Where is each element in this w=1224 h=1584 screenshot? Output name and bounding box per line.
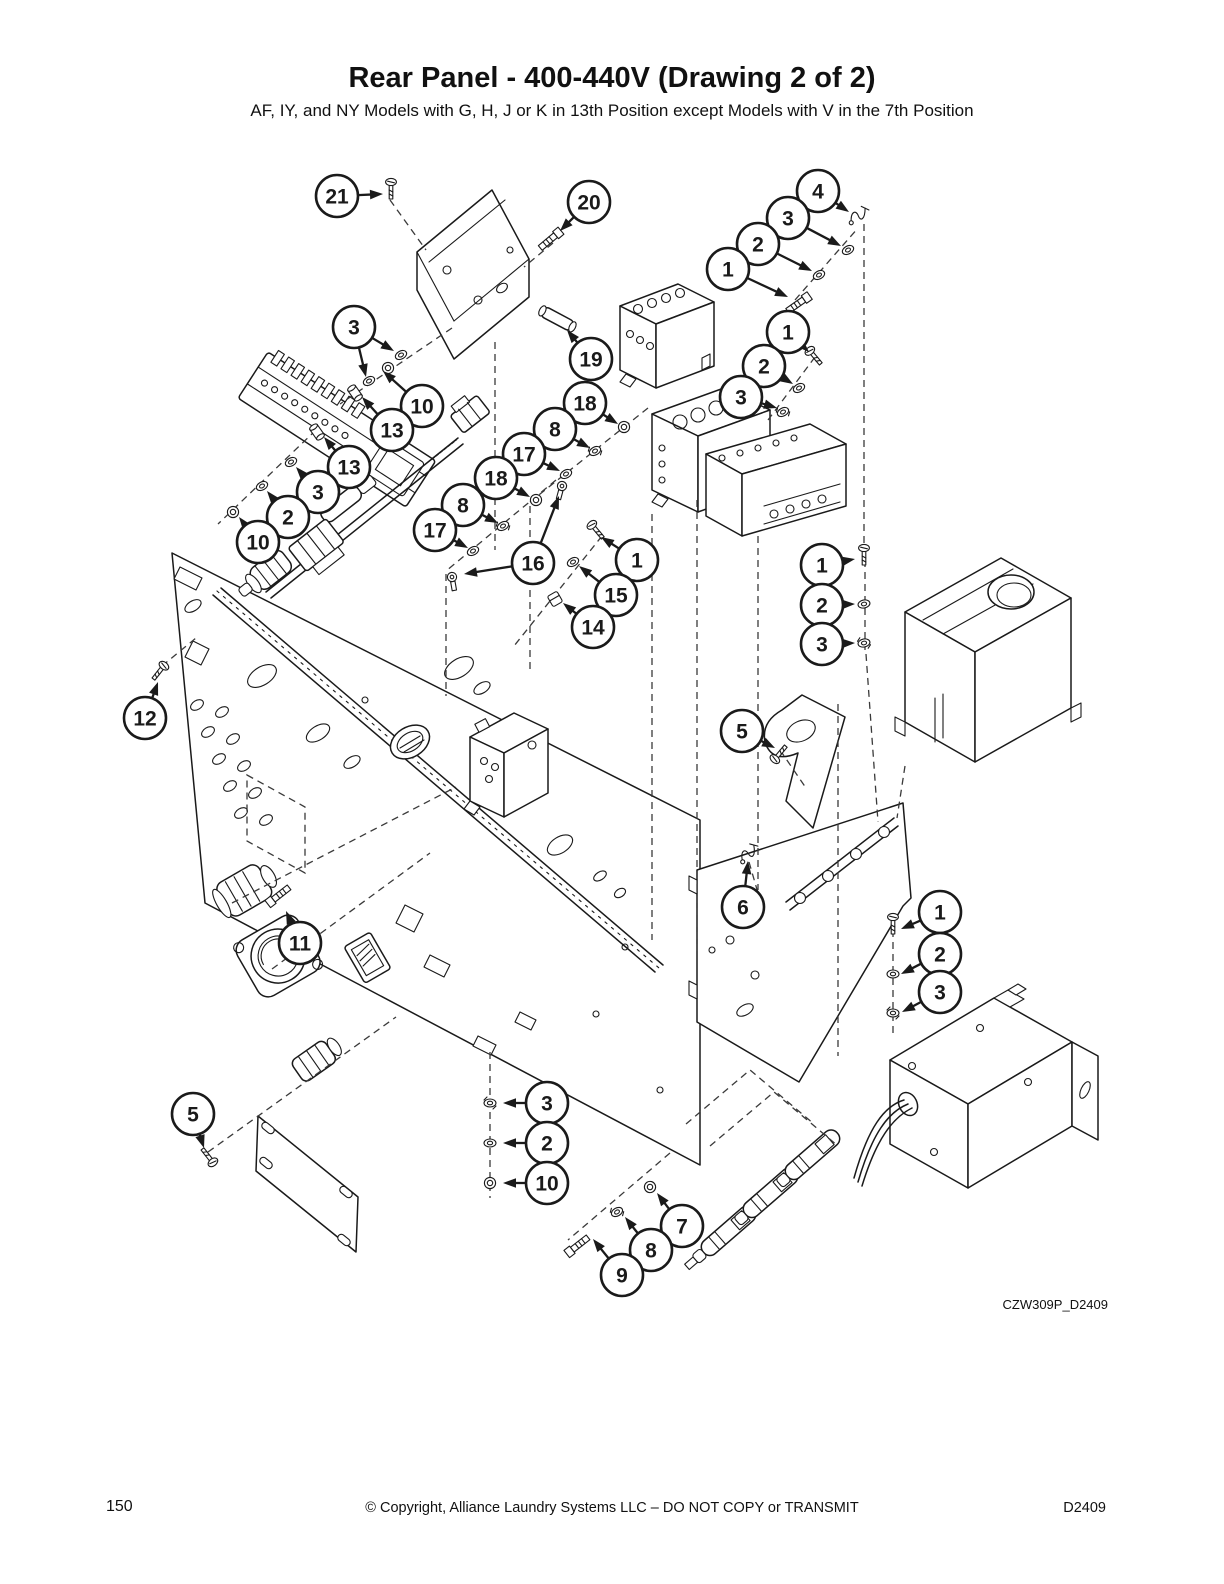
fastener-term (447, 572, 459, 592)
fastener-clamp (845, 204, 871, 225)
callout-arrowhead (370, 190, 383, 200)
callout-number: 3 (541, 1093, 553, 1116)
leader-line (208, 1017, 396, 1152)
fastener-washer (284, 456, 298, 469)
callout-3: 3 (503, 1082, 568, 1124)
callout-number: 7 (676, 1216, 688, 1239)
fastener-washer (362, 375, 376, 388)
callout-arrow (807, 228, 833, 242)
fastener-washer (792, 382, 806, 395)
callout-number: 8 (549, 419, 561, 442)
callout-arrowhead (484, 513, 498, 523)
callout-12: 12 (124, 682, 166, 739)
callout-number: 5 (736, 721, 748, 744)
callout-5: 5 (172, 1093, 214, 1148)
callout-arrowhead (464, 567, 478, 576)
callout-number: 11 (289, 933, 312, 956)
control-box (895, 558, 1081, 762)
callout-arrowhead (550, 496, 559, 510)
callout-number: 13 (337, 457, 360, 480)
callout-arrowhead (380, 340, 394, 351)
fastener-screw (149, 660, 170, 683)
callout-arrowhead (358, 363, 367, 377)
callout-arrowhead (516, 486, 530, 497)
callout-3: 3 (801, 623, 855, 665)
fastener-washer (394, 349, 408, 362)
fastener-washer (812, 269, 826, 282)
callout-arrowhead (774, 287, 788, 297)
fastener-washer (466, 545, 480, 558)
callout-arrowhead (901, 919, 915, 929)
callout-10: 10 (503, 1162, 568, 1204)
callout-number: 2 (752, 234, 764, 257)
callout-arrowhead (195, 1134, 204, 1148)
callout-number: 16 (521, 553, 544, 576)
callout-number: 3 (816, 634, 828, 657)
callout-arrowhead (149, 682, 158, 696)
callout-number: 2 (758, 356, 770, 379)
callout-number: 2 (934, 944, 946, 967)
fastener-nut (227, 506, 238, 517)
fastener-screw (386, 178, 397, 199)
callout-number: 1 (934, 902, 946, 925)
drawing-code: CZW309P_D2409 (978, 1297, 1108, 1312)
callout-number: 3 (934, 982, 946, 1005)
cover-plate (256, 1116, 358, 1252)
callout-number: 17 (512, 444, 535, 467)
callout-number: 5 (187, 1104, 199, 1127)
copyright-text: © Copyright, Alliance Laundry Systems LL… (0, 1500, 1224, 1516)
leader-line (390, 200, 426, 250)
callout-number: 1 (816, 555, 828, 578)
callout-number: 21 (325, 186, 349, 209)
callout-number: 2 (541, 1133, 553, 1156)
fastener-nut (484, 1177, 495, 1188)
callout-arrow (747, 278, 779, 293)
callout-number: 10 (246, 532, 269, 555)
callout-arrowhead (503, 1178, 516, 1188)
callout-number: 4 (812, 181, 824, 204)
manual-page: Rear Panel - 400-440V (Drawing 2 of 2) A… (0, 0, 1224, 1584)
callout-2: 2 (503, 1122, 568, 1164)
callout-arrowhead (827, 236, 841, 246)
fastener-lock (887, 1007, 899, 1019)
callout-number: 13 (380, 420, 403, 443)
fastener-lock (495, 518, 511, 534)
fastener-washer (255, 480, 269, 493)
fastener-term (554, 480, 568, 500)
callout-2: 2 (801, 584, 855, 626)
callout-14: 14 (563, 603, 614, 648)
callout-number: 3 (348, 317, 360, 340)
callout-1: 1 (801, 544, 855, 586)
callout-number: 17 (423, 520, 446, 543)
fastener-lock (609, 1204, 625, 1220)
fastener-lock (484, 1097, 496, 1109)
callout-arrowhead (576, 438, 590, 448)
contactor-upper (620, 284, 714, 388)
callout-number: 9 (616, 1265, 628, 1288)
callout-arrowhead (798, 261, 812, 271)
callout-arrowhead (601, 537, 615, 548)
callout-number: 20 (577, 192, 600, 215)
fastener-nut (642, 1179, 657, 1194)
callout-number: 12 (133, 708, 156, 731)
fastener-nut (618, 421, 629, 432)
callout-arrow (359, 347, 364, 367)
callout-number: 10 (535, 1173, 558, 1196)
callout-number: 8 (457, 495, 469, 518)
standoff-spacer (537, 305, 577, 333)
callout-arrowhead (503, 1138, 516, 1148)
callout-number: 2 (282, 507, 294, 530)
sub-panel (689, 803, 911, 1082)
callout-arrowhead (836, 201, 849, 212)
callout-number: 8 (645, 1240, 657, 1263)
callout-arrow (541, 505, 556, 543)
fastener-washer (484, 1139, 496, 1147)
callout-number: 3 (782, 208, 794, 231)
fastener-nut (530, 494, 541, 505)
fastener-clip (547, 591, 563, 607)
leader-line (866, 654, 878, 822)
fastener-lock (857, 636, 871, 650)
callout-21: 21 (316, 175, 383, 217)
callout-19: 19 (567, 330, 612, 380)
callout-number: 15 (604, 585, 628, 608)
callout-arrowhead (604, 413, 618, 424)
callout-number: 3 (735, 387, 747, 410)
fastener-washer (887, 970, 899, 978)
callout-arrow (474, 566, 512, 572)
callout-arrowhead (546, 461, 560, 471)
callout-arrowhead (901, 964, 915, 974)
callout-arrowhead (763, 400, 777, 409)
callout-number: 19 (579, 349, 602, 372)
fastener-washer (857, 599, 870, 609)
callout-number: 6 (737, 897, 749, 920)
callout-number: 18 (484, 468, 508, 491)
callout-3: 3 (902, 971, 961, 1013)
callout-arrowhead (503, 1098, 516, 1108)
callout-number: 14 (581, 617, 605, 640)
callout-arrowhead (902, 1002, 916, 1012)
callout-number: 1 (631, 550, 643, 573)
fastener-bolt (537, 227, 564, 251)
fastener-bolt (564, 1234, 591, 1258)
fastener-lock (775, 404, 791, 420)
fuse-holders (681, 1127, 843, 1274)
top-bracket (417, 190, 529, 359)
callout-arrow (390, 378, 406, 392)
fastener-screw (859, 544, 870, 565)
callout-arrow (777, 253, 803, 266)
callout-number: 10 (410, 396, 433, 419)
rear-panel (172, 553, 700, 1165)
callout-20: 20 (560, 181, 610, 231)
fastener-screw (198, 1146, 219, 1169)
callout-number: 1 (782, 322, 794, 345)
leader-line (568, 1153, 670, 1240)
callout-number: 1 (722, 259, 734, 282)
callout-number: 3 (312, 482, 324, 505)
callout-number: 18 (573, 393, 597, 416)
doc-number: D2409 (1063, 1500, 1106, 1516)
callout-2: 2 (901, 933, 961, 975)
exploded-parts-diagram: 2120432112331013133210191881718817161151… (0, 0, 1224, 1584)
callout-number: 2 (816, 595, 828, 618)
callout-arrowhead (454, 538, 468, 548)
